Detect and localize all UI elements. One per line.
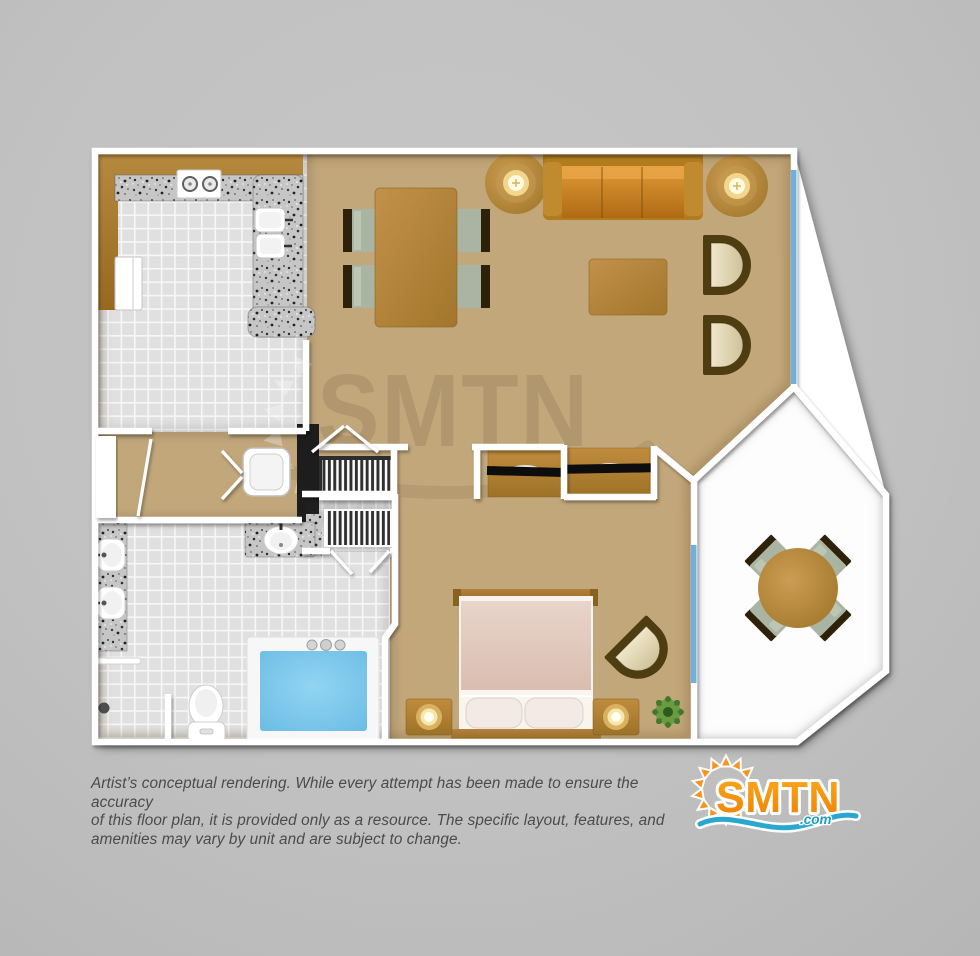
closet-b-hangers: [325, 510, 391, 546]
balcony-table: [758, 548, 838, 628]
dining-table: [375, 188, 457, 327]
closet-a-hangers: [322, 460, 393, 494]
balcony-sliding-door: [691, 545, 697, 683]
nightstand: [406, 699, 452, 735]
logo-tld-text: .com: [800, 812, 832, 827]
disclaimer-line: of this floor plan, it is provided only …: [91, 812, 671, 831]
disclaimer-line: Artist’s conceptual rendering. While eve…: [91, 775, 671, 812]
dining-chair: [455, 265, 490, 308]
towel-bar: [96, 658, 141, 664]
living-room-window: [791, 170, 797, 384]
smtn-logo: SMTN .com: [691, 756, 856, 828]
floorplan-page: SMTN: [0, 0, 980, 956]
disclaimer-line: amenities may vary by unit and are subje…: [91, 831, 671, 850]
tv-dresser: [487, 450, 564, 497]
tv-dresser: [566, 448, 651, 497]
shower: [243, 448, 290, 496]
end-table-lamp: [706, 155, 768, 217]
potted-plant: [652, 696, 684, 728]
stove: [177, 170, 221, 198]
bed: [451, 589, 601, 743]
hall-door-leaf: [96, 436, 116, 518]
sofa: [543, 150, 703, 220]
dining-chair: [343, 265, 378, 308]
floorplan-unit: SMTN: [93, 150, 886, 743]
toilet: [188, 685, 225, 742]
nightstand: [593, 699, 639, 735]
refrigerator: [115, 257, 142, 310]
coffee-table: [589, 259, 667, 315]
bathtub: [247, 637, 379, 742]
end-table-lamp: [485, 152, 547, 214]
media-dressers: [487, 448, 651, 497]
dining-chair: [455, 209, 490, 252]
disclaimer-text: Artist’s conceptual rendering. While eve…: [91, 775, 671, 849]
dining-chair: [343, 209, 378, 252]
balcony: [744, 534, 851, 641]
